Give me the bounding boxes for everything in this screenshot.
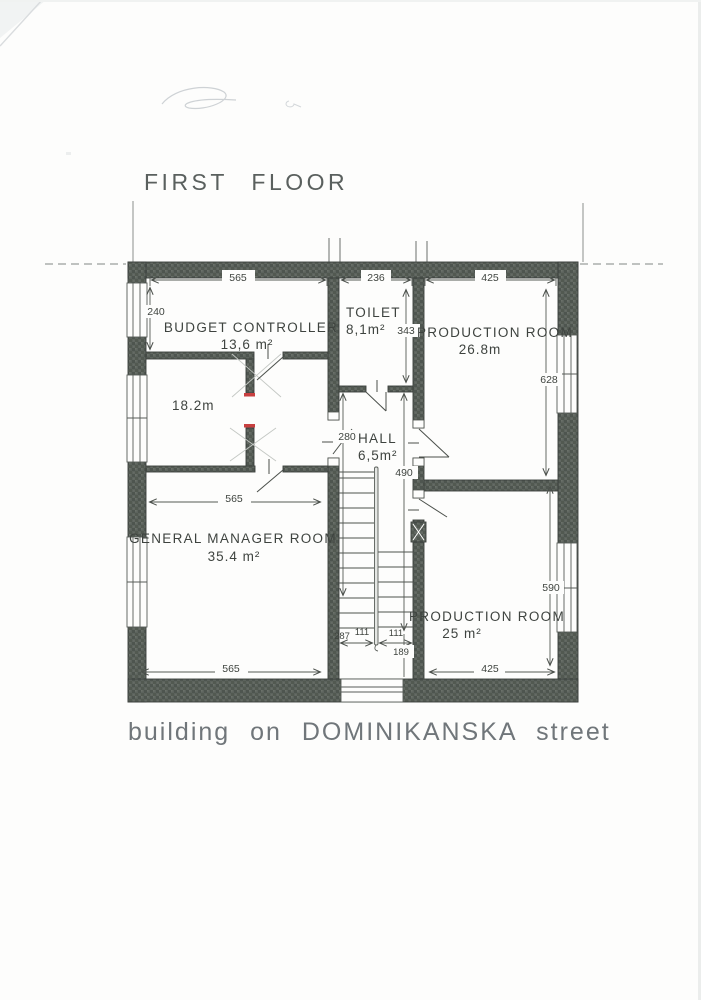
room-budget-controller-area: 13,6 m² [221,337,274,352]
dim-stair-run: 287 [334,631,350,642]
room-general-manager-name: GENERAL MANAGER ROOM [129,531,337,546]
door-toilet [366,380,386,411]
window [127,375,147,462]
chimney-projection-lines [329,238,427,262]
entrance-opening [341,679,403,702]
room-hall-area: 6,5m² [358,448,398,463]
staircase [339,467,413,651]
dim-gm-width: 565 [225,493,243,505]
wall-hall-left-upper [328,278,339,420]
pencil-squiggle [162,88,236,109]
room-middle-area: 18.2m [172,398,215,413]
door-production-top [408,429,449,457]
wall-budget-bottom-b [283,352,328,359]
dim-hall-right: 490 [395,467,413,479]
dim-lower-hall: 189 [393,647,409,658]
wall-toilet-bottom-b [388,386,413,392]
dim-hall-left: 280 [338,431,356,443]
room-production-bottom-name: PRODUCTION ROOM [409,609,565,624]
room-toilet-name: TOILET [346,305,401,320]
room-general-manager-area: 35.4 m² [208,549,261,564]
room-hall-name: HALL [358,431,397,446]
caption: building on DOMINIKANSKA street [128,718,611,746]
dim-right-upper: 628 [540,374,558,386]
scan-artifacts [0,0,701,1000]
dim-top-middle: 236 [367,272,385,284]
exterior-wall-top [128,262,578,278]
dim-left-upper: 240 [147,306,165,318]
door-general-manager [257,459,283,492]
dim-stair-flight-left: 111 [355,627,369,638]
window [127,537,147,627]
stair-handrail [375,467,379,651]
wall-gm-top-a [146,466,255,472]
scanned-floor-plan-page: FIRST FLOOR [0,0,701,1000]
wall-budget-bottom-a [146,352,254,359]
room-production-top-name: PRODUCTION ROOM [417,325,573,340]
wall-hall-right-upper [413,278,424,428]
dim-right-lower: 590 [542,582,560,594]
room-production-bottom-area: 25 m² [442,626,482,641]
dim-bottom-left: 565 [222,663,240,675]
room-budget-controller-name: BUDGET CONTROLLER [164,320,338,335]
wall-toilet-bottom-a [339,386,366,392]
dim-stair-flight-right: 111 [389,628,403,639]
wall-hall-right-lower [413,520,424,679]
wall-gm-top-b [283,466,328,472]
wall-hall-left-lower [328,458,339,679]
room-toilet-area: 8,1m² [346,322,386,337]
dim-top-left: 565 [229,272,247,284]
wall-stub-upper [246,359,254,393]
wall-production-divider [424,480,558,491]
red-mark-upper [244,393,255,397]
door-production-bottom [408,499,447,517]
flue-block [411,522,426,542]
red-mark-lower [244,424,255,428]
windows [127,283,577,702]
page-title: FIRST FLOOR [144,169,348,195]
dim-top-right: 425 [481,272,499,284]
floor-plan-drawing: FIRST FLOOR [0,0,701,1000]
dim-bottom-right: 425 [481,663,499,675]
dim-toilet-height: 343 [397,325,415,337]
construction-x-marks [230,354,281,461]
room-production-top-area: 26.8m [459,342,502,357]
reference-lines [45,201,663,264]
